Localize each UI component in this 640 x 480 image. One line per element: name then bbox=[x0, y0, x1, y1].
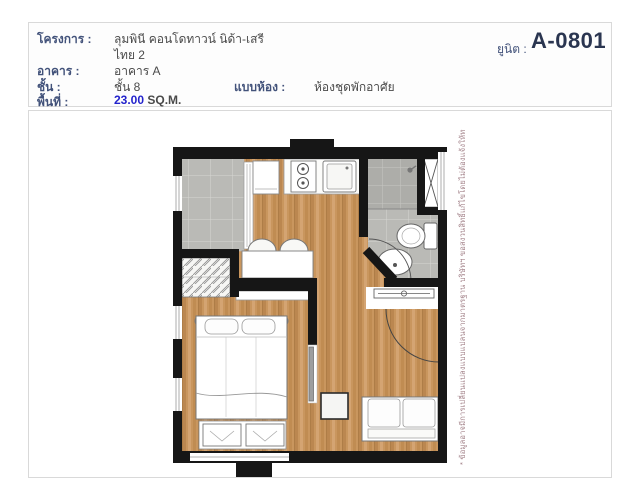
pillow bbox=[205, 319, 238, 334]
area-value: 23.00 bbox=[114, 93, 144, 107]
room-type-value: ห้องชุดพักอาศัย bbox=[314, 78, 395, 97]
sink-icon bbox=[323, 161, 356, 192]
dining-table bbox=[242, 251, 313, 278]
area-value-wrap: 23.00 SQ.M. bbox=[114, 93, 181, 107]
unit-number: A-0801 bbox=[531, 28, 606, 54]
room-type-label: แบบห้อง : bbox=[234, 78, 285, 97]
pillow bbox=[242, 319, 275, 334]
sofa bbox=[362, 397, 438, 441]
kitchen bbox=[253, 159, 360, 194]
shaft bbox=[424, 159, 438, 207]
area-unit: SQ.M. bbox=[147, 93, 181, 107]
floor-plan-drawing bbox=[166, 131, 478, 479]
balcony-window bbox=[173, 176, 182, 211]
shower-area bbox=[368, 159, 417, 209]
stove-icon bbox=[291, 161, 316, 192]
bottom-window bbox=[190, 453, 289, 461]
unit-info-header: โครงการ : ลุมพินี คอนโดทาวน์ นิด้า-เสรี … bbox=[28, 22, 612, 107]
bed-bench bbox=[199, 421, 286, 449]
side-table bbox=[321, 393, 348, 419]
toilet-icon bbox=[397, 223, 437, 249]
floor-plan bbox=[166, 131, 478, 479]
floor-plan-panel: * ข้อมูลอาจมีการเปลี่ยนแปลงแบบแปลนจากมาต… bbox=[28, 110, 612, 478]
disclaimer-note: * ข้อมูลอาจมีการเปลี่ยนแปลงแบบแปลนจากมาต… bbox=[457, 129, 470, 465]
bed bbox=[195, 316, 288, 419]
unit-label: ยูนิต : bbox=[497, 40, 527, 59]
bedroom-window-1 bbox=[173, 306, 182, 339]
balcony-sliding-door bbox=[244, 162, 253, 249]
shaft-window bbox=[438, 152, 447, 210]
bedroom-shelf bbox=[236, 291, 311, 300]
balcony bbox=[182, 159, 253, 251]
bedroom-sliding-door bbox=[308, 345, 317, 403]
project-label: โครงการ : bbox=[37, 30, 92, 49]
wardrobe bbox=[182, 258, 230, 297]
bedroom-window-2 bbox=[173, 378, 182, 411]
